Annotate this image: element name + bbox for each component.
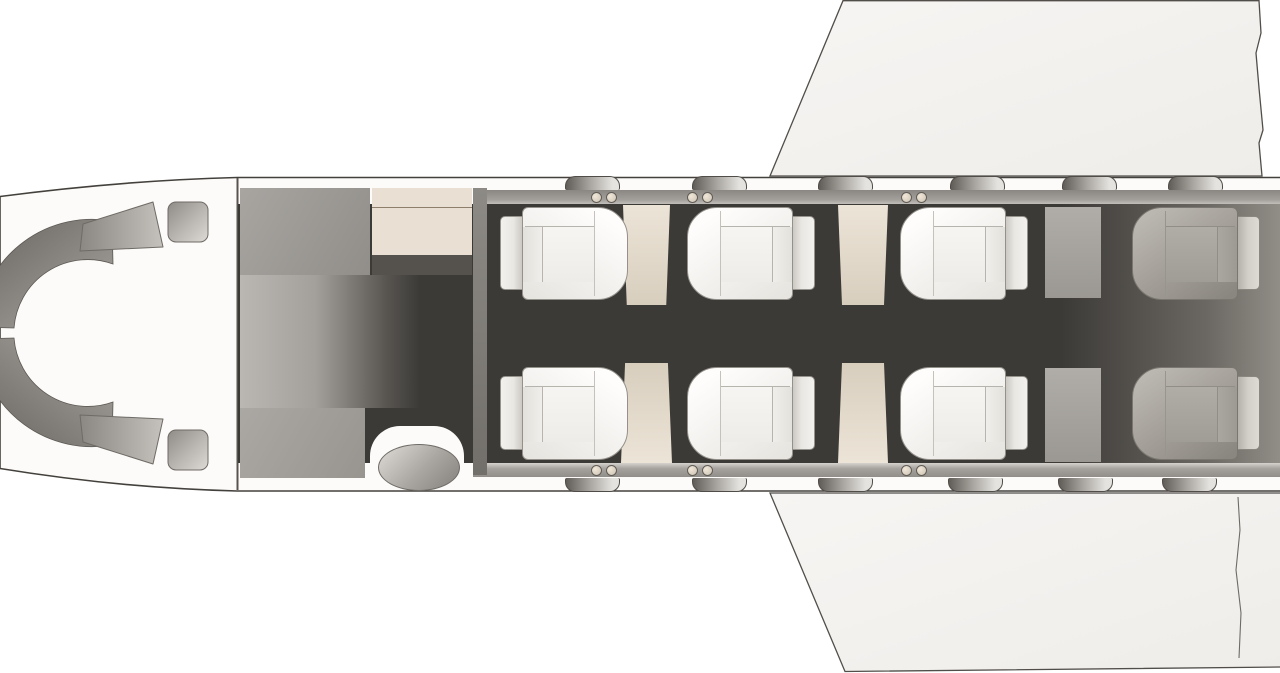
seat-3-left bbox=[900, 207, 1028, 300]
door-hinge-dots-top bbox=[901, 192, 929, 203]
pilot-headrest-left bbox=[168, 202, 208, 242]
aft-divider-right bbox=[1045, 368, 1101, 462]
seat-cushion bbox=[543, 387, 594, 442]
table-1-right bbox=[621, 363, 672, 463]
entry-vestibule bbox=[240, 275, 420, 408]
seat-bolster-line bbox=[594, 371, 595, 456]
seat-shell bbox=[687, 367, 793, 460]
hinge-dot bbox=[901, 192, 912, 203]
seat-cushion bbox=[934, 387, 985, 442]
seat-back-cushion bbox=[523, 387, 543, 442]
seat-shell bbox=[900, 207, 1006, 300]
seat-cushion bbox=[721, 387, 772, 442]
door-hinge-dots-bottom bbox=[901, 465, 929, 476]
galley-unit bbox=[372, 188, 472, 255]
entry-door-step bbox=[378, 444, 460, 491]
seat-cushion bbox=[934, 227, 985, 282]
table-2-right bbox=[838, 363, 888, 463]
hinge-dot bbox=[591, 465, 602, 476]
cabin-window bbox=[950, 176, 1005, 190]
cabin-window bbox=[818, 478, 873, 492]
seat-back-cushion bbox=[985, 387, 1005, 442]
seat-shell bbox=[1132, 207, 1238, 300]
hinge-dot bbox=[591, 192, 602, 203]
table-1-left bbox=[623, 205, 670, 305]
door-hinge-dots-bottom bbox=[591, 465, 619, 476]
cabin-window bbox=[1062, 176, 1117, 190]
door-hinge-dots-top bbox=[687, 192, 715, 203]
door-hinge-dots-top bbox=[591, 192, 619, 203]
hinge-dot bbox=[702, 465, 713, 476]
seat-cushion bbox=[543, 227, 594, 282]
cabin-window bbox=[1058, 478, 1113, 492]
seat-cushion bbox=[721, 227, 772, 282]
cabin-window bbox=[565, 478, 620, 492]
seat-cushion bbox=[1166, 227, 1217, 282]
forward-cabinet bbox=[240, 408, 365, 478]
cabin-window bbox=[818, 176, 873, 190]
seat-shell bbox=[522, 207, 628, 300]
seat-back-cushion bbox=[1217, 227, 1237, 282]
pilot-headrest-right bbox=[168, 430, 208, 470]
seat-2-right bbox=[687, 367, 815, 460]
hinge-dot bbox=[702, 192, 713, 203]
galley-counter-line bbox=[372, 207, 472, 208]
seat-back-cushion bbox=[1217, 387, 1237, 442]
hinge-dot bbox=[687, 465, 698, 476]
seat-3-right bbox=[900, 367, 1028, 460]
seat-shell bbox=[900, 367, 1006, 460]
cabin-window bbox=[1162, 478, 1217, 492]
seat-back-cushion bbox=[772, 387, 792, 442]
seat-shell bbox=[687, 207, 793, 300]
seat-2-left bbox=[687, 207, 815, 300]
door-hinge-dots-bottom bbox=[687, 465, 715, 476]
seat-bolster-line bbox=[594, 211, 595, 296]
cabin-partition bbox=[473, 188, 487, 475]
seat-back-cushion bbox=[985, 227, 1005, 282]
seat-shell bbox=[522, 367, 628, 460]
wing-upper bbox=[770, 1, 1263, 176]
galley-shelf bbox=[372, 255, 472, 275]
cabin-window bbox=[692, 176, 747, 190]
cabin-window bbox=[565, 176, 620, 190]
hinge-dot bbox=[901, 465, 912, 476]
hinge-dot bbox=[916, 465, 927, 476]
table-2-left bbox=[838, 205, 888, 305]
seat-cushion bbox=[1166, 387, 1217, 442]
seat-shell bbox=[1132, 367, 1238, 460]
aircraft-floor-plan-diagram bbox=[0, 0, 1280, 673]
wing-lower bbox=[770, 493, 1280, 672]
cabin-window bbox=[692, 478, 747, 492]
hinge-dot bbox=[687, 192, 698, 203]
seat-1-left bbox=[500, 207, 628, 300]
hinge-dot bbox=[916, 192, 927, 203]
seat-4-left bbox=[1132, 207, 1260, 300]
aft-divider-left bbox=[1045, 207, 1101, 298]
hinge-dot bbox=[606, 465, 617, 476]
cabin-window bbox=[948, 478, 1003, 492]
forward-wardrobe bbox=[240, 188, 370, 275]
hinge-dot bbox=[606, 192, 617, 203]
seat-4-right bbox=[1132, 367, 1260, 460]
seat-back-cushion bbox=[523, 227, 543, 282]
seat-1-right bbox=[500, 367, 628, 460]
cabin-window bbox=[1168, 176, 1223, 190]
seat-back-cushion bbox=[772, 227, 792, 282]
